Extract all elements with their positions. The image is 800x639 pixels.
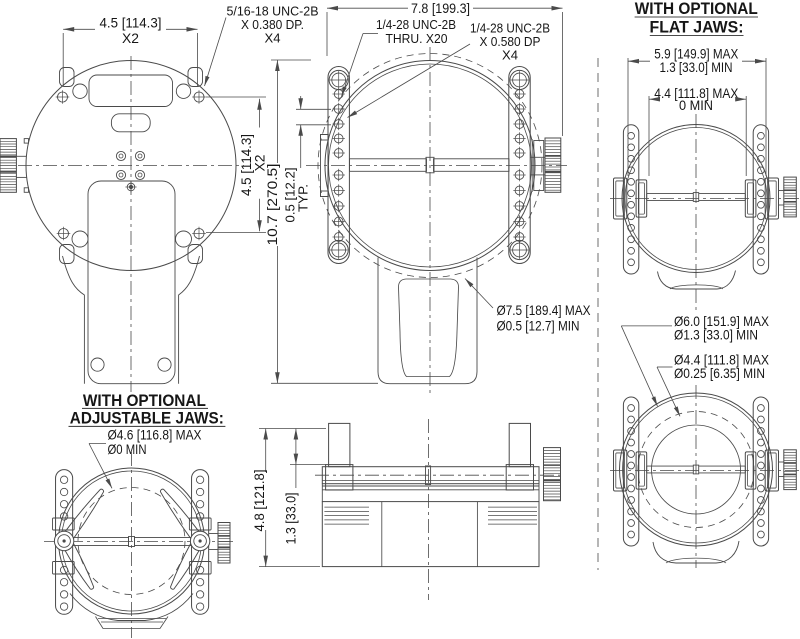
svg-text:Ø0.5 [12.7] MIN: Ø0.5 [12.7] MIN — [497, 319, 580, 334]
svg-text:THRU. X20: THRU. X20 — [386, 31, 448, 46]
svg-text:Ø0 MIN: Ø0 MIN — [108, 442, 147, 457]
svg-text:Ø4.6 [116.8] MAX: Ø4.6 [116.8] MAX — [108, 428, 202, 443]
svg-text:X4: X4 — [265, 31, 281, 46]
svg-text:0 MIN: 0 MIN — [679, 98, 713, 113]
svg-text:1.3 [33.0] MIN: 1.3 [33.0] MIN — [660, 60, 733, 75]
svg-text:7.8 [199.3]: 7.8 [199.3] — [411, 1, 470, 16]
svg-text:Ø0.25 [6.35] MIN: Ø0.25 [6.35] MIN — [674, 366, 765, 381]
svg-text:1.3 [33.0]: 1.3 [33.0] — [283, 493, 298, 545]
svg-text:FLAT JAWS:: FLAT JAWS: — [650, 19, 744, 37]
svg-text:ADJUSTABLE JAWS:: ADJUSTABLE JAWS: — [70, 409, 224, 427]
svg-text:X4: X4 — [502, 48, 518, 63]
svg-text:WITH OPTIONAL: WITH OPTIONAL — [83, 392, 206, 410]
svg-text:Ø1.3 [33.0] MIN: Ø1.3 [33.0] MIN — [674, 328, 758, 343]
svg-text:4.8 [121.8]: 4.8 [121.8] — [252, 470, 267, 532]
svg-text:WITH OPTIONAL: WITH OPTIONAL — [635, 0, 758, 18]
svg-text:10.7 [270.5]: 10.7 [270.5] — [265, 164, 280, 246]
svg-text:Ø7.5 [189.4] MAX: Ø7.5 [189.4] MAX — [497, 303, 591, 318]
svg-text:TYP.: TYP. — [296, 184, 311, 212]
svg-text:X2: X2 — [122, 31, 139, 46]
svg-text:4.5 [114.3]: 4.5 [114.3] — [100, 16, 162, 31]
svg-text:1/4-28 UNC-2B: 1/4-28 UNC-2B — [376, 17, 456, 32]
